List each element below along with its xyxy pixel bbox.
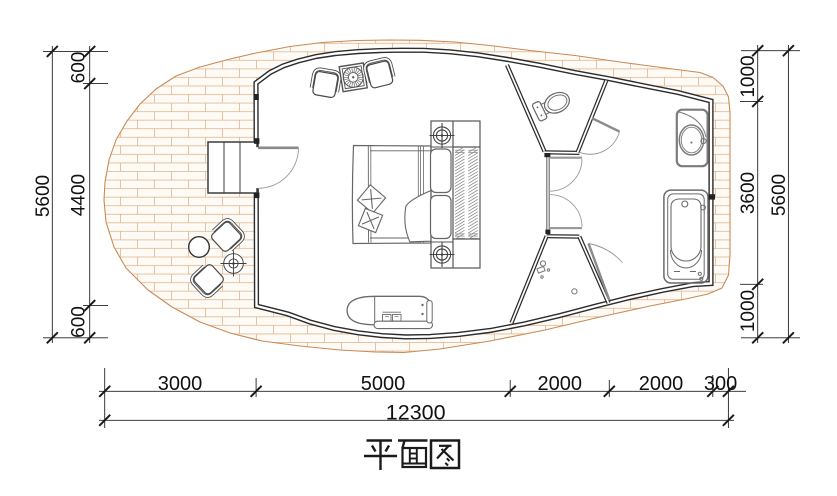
svg-text:1000: 1000 [738,55,759,97]
svg-text:2000: 2000 [538,373,583,395]
svg-text:12300: 12300 [386,401,446,425]
svg-text:5600: 5600 [769,174,790,216]
svg-text:3000: 3000 [158,373,203,395]
svg-text:4400: 4400 [69,174,90,216]
svg-text:5600: 5600 [33,175,54,217]
svg-text:1000: 1000 [738,290,759,332]
svg-text:600: 600 [69,306,90,338]
svg-text:2000: 2000 [639,373,684,395]
svg-text:600: 600 [69,52,90,84]
svg-text:3600: 3600 [738,172,759,214]
svg-text:5000: 5000 [361,373,406,395]
svg-text:300: 300 [704,373,737,395]
